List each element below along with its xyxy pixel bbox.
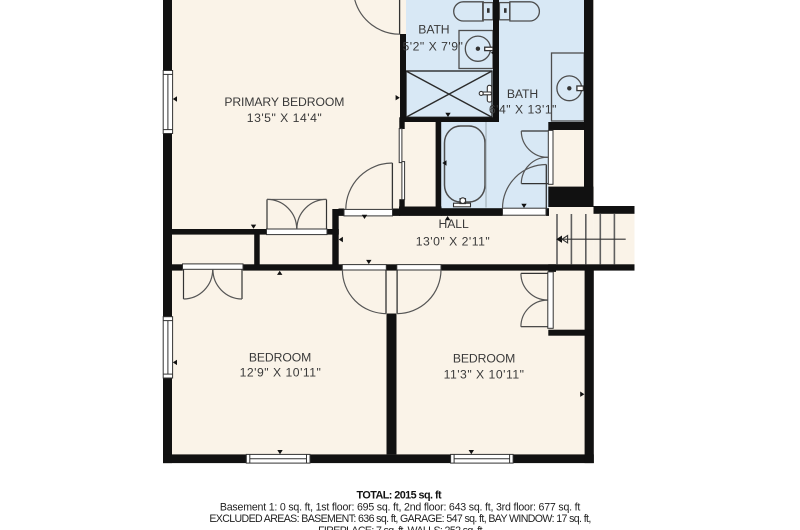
svg-text:13'0" X 2'11": 13'0" X 2'11" bbox=[416, 234, 490, 248]
svg-text:FIREPLACE: 7 sq. ft, WALLS: 25: FIREPLACE: 7 sq. ft, WALLS: 252 sq. ft bbox=[318, 525, 483, 530]
svg-text:Basement 1: 0 sq. ft, 1st floo: Basement 1: 0 sq. ft, 1st floor: 695 sq.… bbox=[220, 502, 581, 514]
svg-text:PRIMARY BEDROOM: PRIMARY BEDROOM bbox=[224, 95, 344, 109]
svg-text:12'9" X 10'11": 12'9" X 10'11" bbox=[240, 365, 322, 379]
svg-text:BATH: BATH bbox=[507, 87, 538, 101]
svg-text:13'5" X 14'4": 13'5" X 14'4" bbox=[247, 111, 322, 125]
svg-text:11'3" X 10'11": 11'3" X 10'11" bbox=[444, 367, 525, 381]
svg-text:6'4" X 13'1": 6'4" X 13'1" bbox=[489, 102, 557, 116]
svg-text:TOTAL: 2015 sq. ft: TOTAL: 2015 sq. ft bbox=[357, 490, 442, 502]
svg-text:BATH: BATH bbox=[418, 23, 449, 37]
svg-text:HALL: HALL bbox=[439, 217, 469, 231]
svg-text:EXCLUDED AREAS: BASEMENT: 636: EXCLUDED AREAS: BASEMENT: 636 sq. ft, GA… bbox=[209, 513, 590, 525]
svg-text:5'2" X 7'9": 5'2" X 7'9" bbox=[402, 40, 463, 54]
svg-text:BEDROOM: BEDROOM bbox=[249, 351, 311, 365]
svg-text:BEDROOM: BEDROOM bbox=[453, 352, 515, 366]
